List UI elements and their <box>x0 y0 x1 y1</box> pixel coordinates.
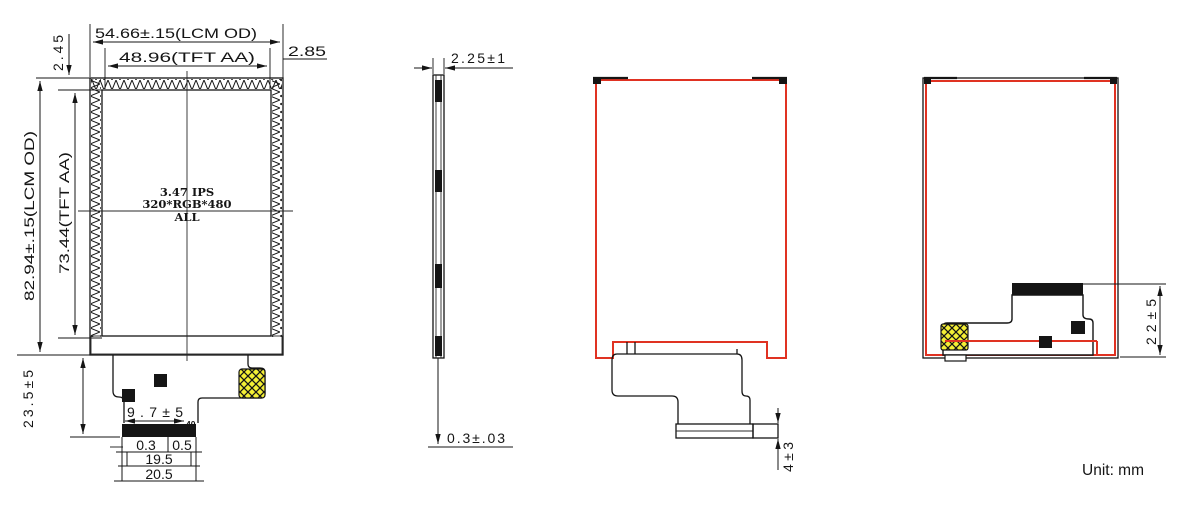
dim-aa-height-label: 73.44(TFT AA) <box>56 152 72 274</box>
dim-fpc-fold-label: 22±5 <box>1143 299 1159 345</box>
panel-all-label: ALL <box>173 210 199 224</box>
top-hatch-border <box>91 79 282 89</box>
fold-height-dimension: 22±5 <box>1083 284 1166 357</box>
side-profile-outline <box>433 75 444 358</box>
unit-label: Unit: mm <box>1082 462 1144 479</box>
stiffener-bar <box>1012 283 1083 295</box>
panel-resolution-label: 320*RGB*480 <box>142 197 231 211</box>
drawing-sheet: 54.66±.15(LCM OD) 48.96(TFT AA) 2.85 2.4… <box>0 0 1200 512</box>
lcd-outline-drawing: 54.66±.15(LCM OD) 48.96(TFT AA) 2.85 2.4… <box>0 0 1200 512</box>
back-view: 4±3 <box>593 77 796 472</box>
dim-aa-width-label: 48.96(TFT AA) <box>119 49 255 65</box>
left-hatch-border <box>91 79 101 337</box>
dim-connector-height-label: 4±3 <box>780 442 796 472</box>
folded-view: 22±5 <box>923 77 1166 361</box>
connector-height-dimension: 4±3 <box>778 408 796 472</box>
right-hatch-border <box>272 79 282 337</box>
dim-pin-width-label: 0.5 <box>172 437 192 453</box>
connector-dimension-rows: 0.3 0.5 19.5 20.5 <box>114 437 204 482</box>
front-left-dimensions: 82.94±.15(LCM OD) 73.44(TFT AA) 23.5±5 <box>17 78 123 447</box>
dim-fpc-offset-label: 9.7±5 <box>127 404 183 420</box>
dim-lcm-width-label: 54.66±.15(LCM OD) <box>95 25 257 41</box>
back-fpc-outline <box>612 342 778 438</box>
fpc-component-2 <box>122 389 135 402</box>
panel-back-outline <box>596 80 786 358</box>
fpc-component-1 <box>154 374 167 387</box>
fpc-end-tab <box>753 424 778 438</box>
dim-contact-width-label: 19.5 <box>145 451 172 467</box>
backlight-connector-folded-hatch <box>941 324 968 350</box>
fpc-component-4 <box>1039 336 1052 348</box>
dim-lcm-height-label: 82.94±.15(LCM OD) <box>21 131 37 301</box>
dim-fpc-thickness-label: 0.3±.03 <box>447 430 505 446</box>
lcm-module-outline: 3.47 IPS 320*RGB*480 ALL <box>78 71 293 361</box>
dim-fpc-width-label: 20.5 <box>145 466 172 482</box>
fpc-tail: 9.7±5 40 <box>113 355 265 437</box>
contact-bar <box>122 424 196 437</box>
dim-thickness-label: 2.25±1 <box>451 50 505 66</box>
bottom-hatch-band <box>91 336 282 354</box>
side-thickness-dimension: 2.25±1 <box>414 50 513 74</box>
side-fpc-dimension: 0.3±.03 <box>428 358 513 447</box>
dim-top-right-label: 2.85 <box>288 43 326 59</box>
dim-top-left-label: 2.45 <box>50 35 66 71</box>
front-view: 54.66±.15(LCM OD) 48.96(TFT AA) 2.85 2.4… <box>17 24 327 482</box>
fpc-component-3 <box>1071 321 1085 334</box>
backlight-connector-hatch <box>239 369 265 398</box>
fpc-bottom-tab <box>945 355 966 361</box>
side-view: 2.25±1 0.3±.03 <box>414 50 513 447</box>
dim-fpc-length-label: 23.5±5 <box>20 370 36 428</box>
